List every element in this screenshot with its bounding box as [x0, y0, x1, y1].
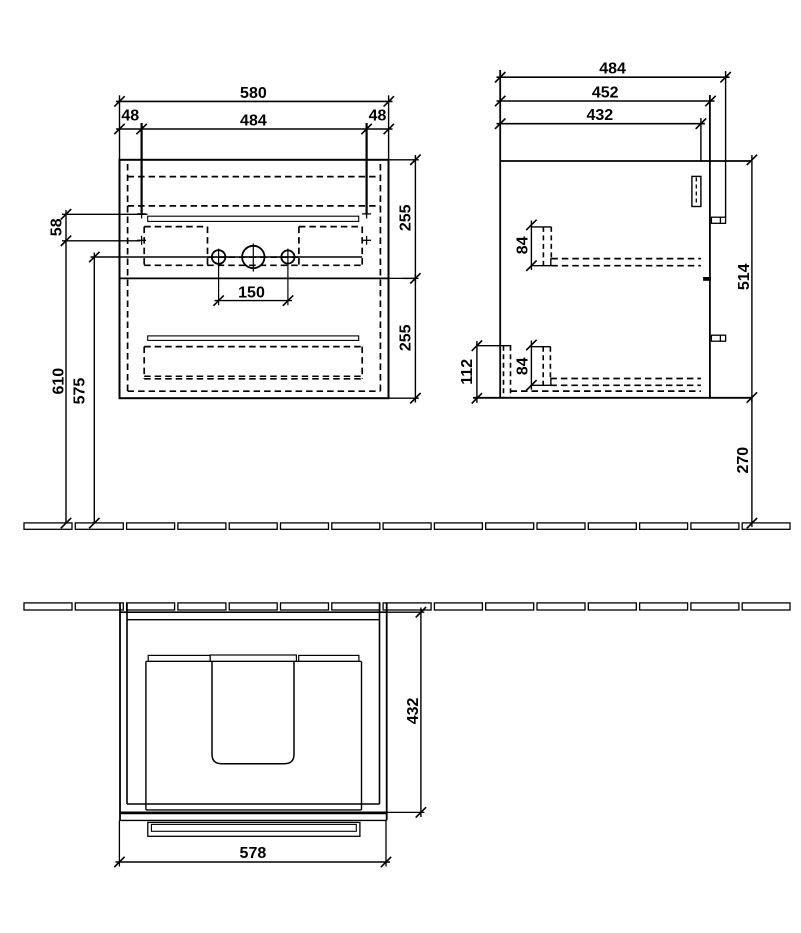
svg-text:255: 255	[398, 324, 415, 351]
svg-text:514: 514	[736, 263, 753, 290]
svg-text:58: 58	[49, 218, 66, 236]
svg-text:112: 112	[459, 359, 476, 385]
svg-text:452: 452	[592, 84, 619, 101]
svg-text:84: 84	[514, 357, 531, 375]
svg-text:48: 48	[121, 107, 139, 124]
svg-text:270: 270	[735, 447, 752, 474]
svg-text:432: 432	[586, 107, 613, 124]
svg-text:432: 432	[405, 697, 422, 724]
svg-text:484: 484	[599, 61, 626, 78]
svg-text:484: 484	[240, 113, 267, 130]
svg-text:84: 84	[514, 236, 531, 254]
svg-text:580: 580	[240, 85, 267, 102]
svg-text:255: 255	[398, 204, 415, 231]
svg-text:578: 578	[240, 845, 267, 862]
svg-text:575: 575	[72, 378, 89, 405]
svg-text:610: 610	[51, 368, 68, 395]
svg-text:48: 48	[369, 107, 387, 124]
svg-text:150: 150	[238, 284, 265, 301]
